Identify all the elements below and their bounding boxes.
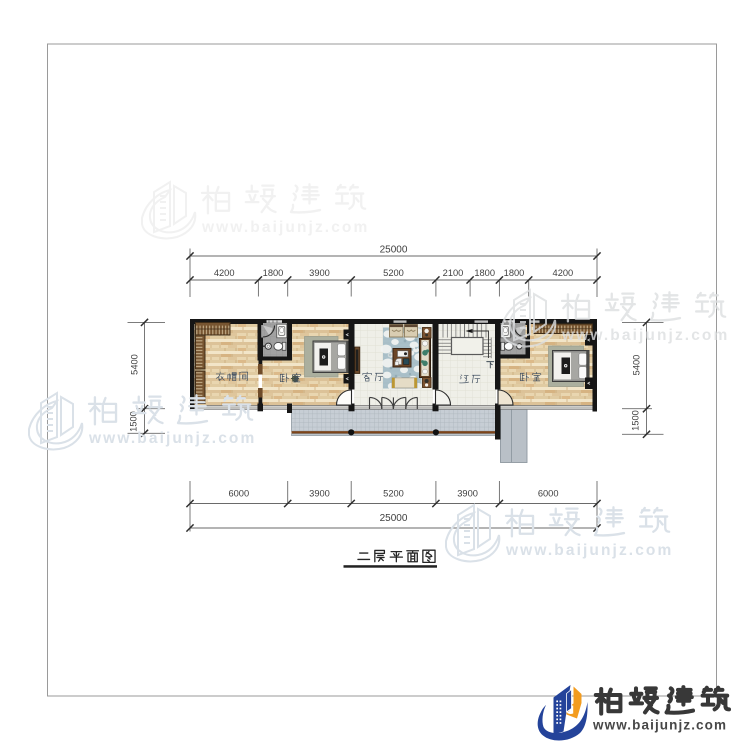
svg-text:1800: 1800: [263, 268, 284, 278]
svg-text:2100: 2100: [443, 268, 464, 278]
svg-text:5200: 5200: [383, 489, 404, 499]
svg-text:1500: 1500: [631, 410, 641, 431]
svg-text:5400: 5400: [130, 354, 140, 375]
svg-text:25000: 25000: [380, 513, 408, 524]
svg-text:3900: 3900: [309, 489, 330, 499]
svg-text:3900: 3900: [457, 489, 478, 499]
svg-text:5400: 5400: [632, 355, 642, 376]
svg-text:25000: 25000: [380, 245, 408, 256]
svg-text:3900: 3900: [309, 268, 330, 278]
svg-text:5200: 5200: [383, 268, 404, 278]
svg-text:6000: 6000: [228, 489, 249, 499]
svg-text:1800: 1800: [504, 268, 525, 278]
svg-text:6000: 6000: [538, 489, 559, 499]
svg-text:4200: 4200: [553, 268, 574, 278]
svg-text:1800: 1800: [474, 268, 495, 278]
svg-text:www.baijunjz.com: www.baijunjz.com: [592, 718, 727, 733]
svg-text:4200: 4200: [214, 268, 235, 278]
